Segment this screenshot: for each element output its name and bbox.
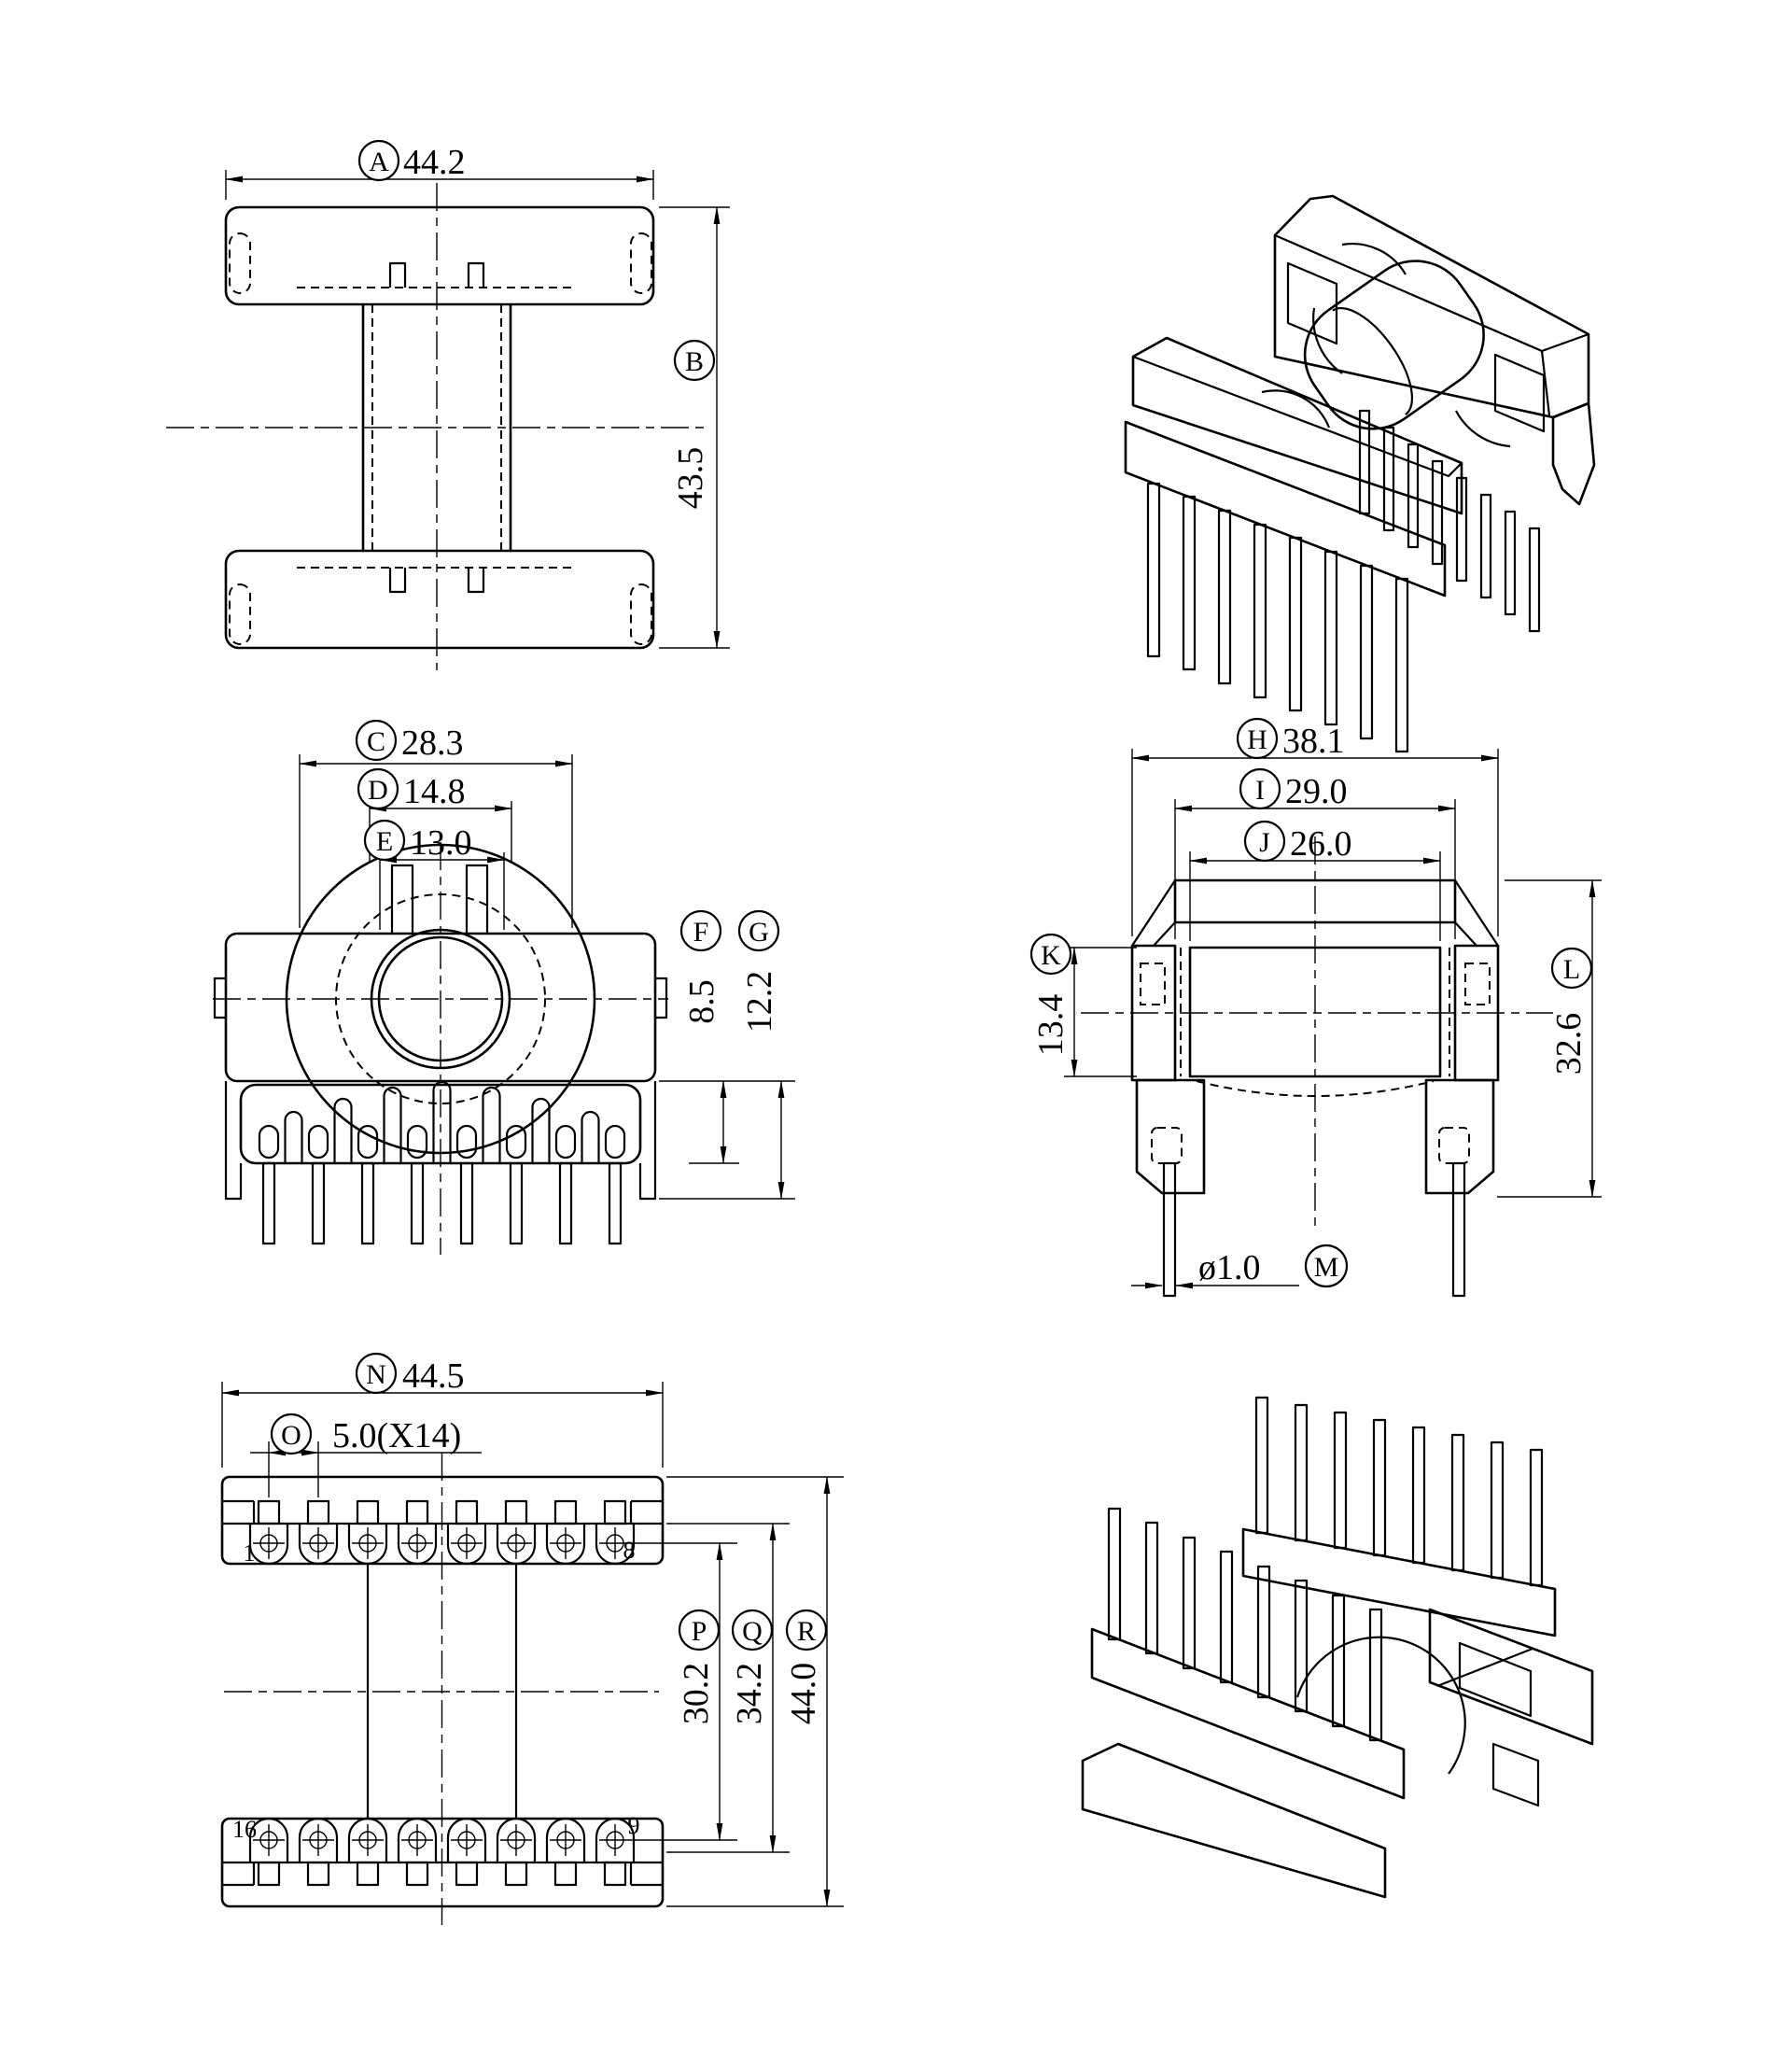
front-hidden-slot: [230, 233, 250, 293]
dim-value-N: 44.5: [402, 1356, 465, 1396]
front-hidden-slot: [230, 584, 250, 644]
dim-value-O: 5.0(X14): [332, 1416, 461, 1455]
dim-value-L: 32.6: [1549, 1013, 1589, 1075]
top-pins: [263, 1163, 621, 1244]
iso-top-far-flange: [1275, 196, 1589, 417]
iso-top-near-pins: [1148, 484, 1407, 752]
dim-letter-D: D: [368, 775, 388, 806]
dim-letter-F: F: [693, 917, 709, 948]
iso-bottom-right-flange: [1430, 1609, 1592, 1744]
side-hidden-pin-hole: [1152, 1128, 1182, 1163]
dim-value-K: 13.4: [1031, 994, 1071, 1057]
dim-value-Q: 34.2: [730, 1663, 769, 1725]
dim-value-H: 38.1: [1282, 722, 1345, 761]
dim-value-P: 30.2: [677, 1663, 716, 1725]
engineering-drawing: A 44.2 B 43.5 C 28.3 D 14.8: [0, 0, 1792, 2052]
front-top-flange: [226, 207, 653, 304]
iso-bottom-flange-details: [1460, 1643, 1538, 1806]
side-hidden-window: [1141, 963, 1165, 1005]
dim-letter-M: M: [1314, 1252, 1339, 1283]
dim-value-F: 8.5: [682, 979, 721, 1024]
dim-letter-E: E: [376, 826, 393, 857]
dim-letter-B: B: [685, 346, 704, 377]
dim-letter-P: P: [692, 1616, 707, 1647]
dim-letter-I: I: [1255, 775, 1265, 806]
dim-value-A: 44.2: [403, 143, 466, 182]
dim-letter-C: C: [367, 726, 385, 757]
front-hidden-slot: [631, 233, 651, 293]
dim-value-D: 14.8: [403, 772, 466, 811]
dim-value-J: 26.0: [1290, 824, 1352, 864]
dim-letter-O: O: [281, 1420, 301, 1451]
iso-top-far-pins: [1360, 411, 1539, 631]
dim-FG-leader-lines: [659, 1081, 795, 1199]
dim-letter-G: G: [749, 917, 769, 948]
drawing-sheet: A 44.2 B 43.5 C 28.3 D 14.8: [0, 0, 1792, 2052]
iso-top-pin-header: [1126, 422, 1445, 596]
top-centerlines: [213, 842, 668, 1255]
dim-letter-A: A: [369, 147, 389, 177]
dim-letter-H: H: [1247, 724, 1267, 755]
dim-I-extension-lines: [1175, 799, 1455, 939]
bottom-view: 1 8 16 9 N 44.5 O 5.0(X14) P 30.2: [222, 1354, 844, 1925]
top-comb-arches: [286, 1082, 599, 1163]
side-view: H 38.1 I 29.0 J 26.0 K 13.4 L 32.6 M ø1.…: [1031, 719, 1602, 1296]
dim-letter-Q: Q: [742, 1616, 763, 1647]
dim-value-E: 13.0: [410, 823, 472, 863]
dim-value-G: 12.2: [740, 971, 779, 1033]
dim-letter-K: K: [1041, 940, 1061, 971]
dim-letter-N: N: [366, 1359, 386, 1390]
iso-top-right-bracket: [1553, 403, 1594, 504]
iso-bottom-far-pins: [1256, 1398, 1542, 1585]
dim-value-C: 28.3: [401, 724, 464, 763]
dim-letter-R: R: [797, 1616, 816, 1647]
dim-E-extension-lines: [380, 852, 504, 930]
pin-number-1: 1: [244, 1539, 256, 1567]
pin-number-8: 8: [623, 1537, 636, 1564]
iso-bottom-far-comb: [1243, 1529, 1555, 1636]
pin-number-9: 9: [628, 1812, 640, 1839]
iso-bottom-near-comb: [1092, 1629, 1404, 1798]
iso-top-round-flange-arcs: [1313, 244, 1510, 446]
iso-bottom-near-pins: [1109, 1509, 1381, 1740]
dim-letter-L: L: [1563, 954, 1580, 985]
isometric-view-bottom: [1083, 1398, 1592, 1897]
pin-number-16: 16: [232, 1816, 257, 1843]
dim-value-B: 43.5: [671, 447, 710, 510]
side-hidden-window: [1465, 963, 1490, 1005]
dim-value-I: 29.0: [1285, 772, 1348, 811]
dim-value-R: 44.0: [784, 1663, 823, 1725]
dim-value-M: ø1.0: [1198, 1248, 1261, 1287]
dim-letter-J: J: [1259, 827, 1270, 858]
side-right-pin-base: [1426, 1080, 1493, 1193]
side-centerlines: [1081, 836, 1553, 1232]
front-bottom-flange: [226, 551, 653, 648]
front-centerlines: [166, 183, 709, 670]
iso-bottom-base-plate: [1083, 1744, 1385, 1897]
side-left-pin-base: [1137, 1080, 1204, 1193]
front-view: A 44.2 B 43.5: [166, 141, 730, 670]
front-hidden-slot: [631, 584, 651, 644]
side-hidden-pin-hole: [1439, 1128, 1469, 1163]
top-view: C 28.3 D 14.8 E 13.0 F 8.5 G 12.2: [213, 721, 795, 1255]
isometric-view-top: [1126, 196, 1594, 752]
